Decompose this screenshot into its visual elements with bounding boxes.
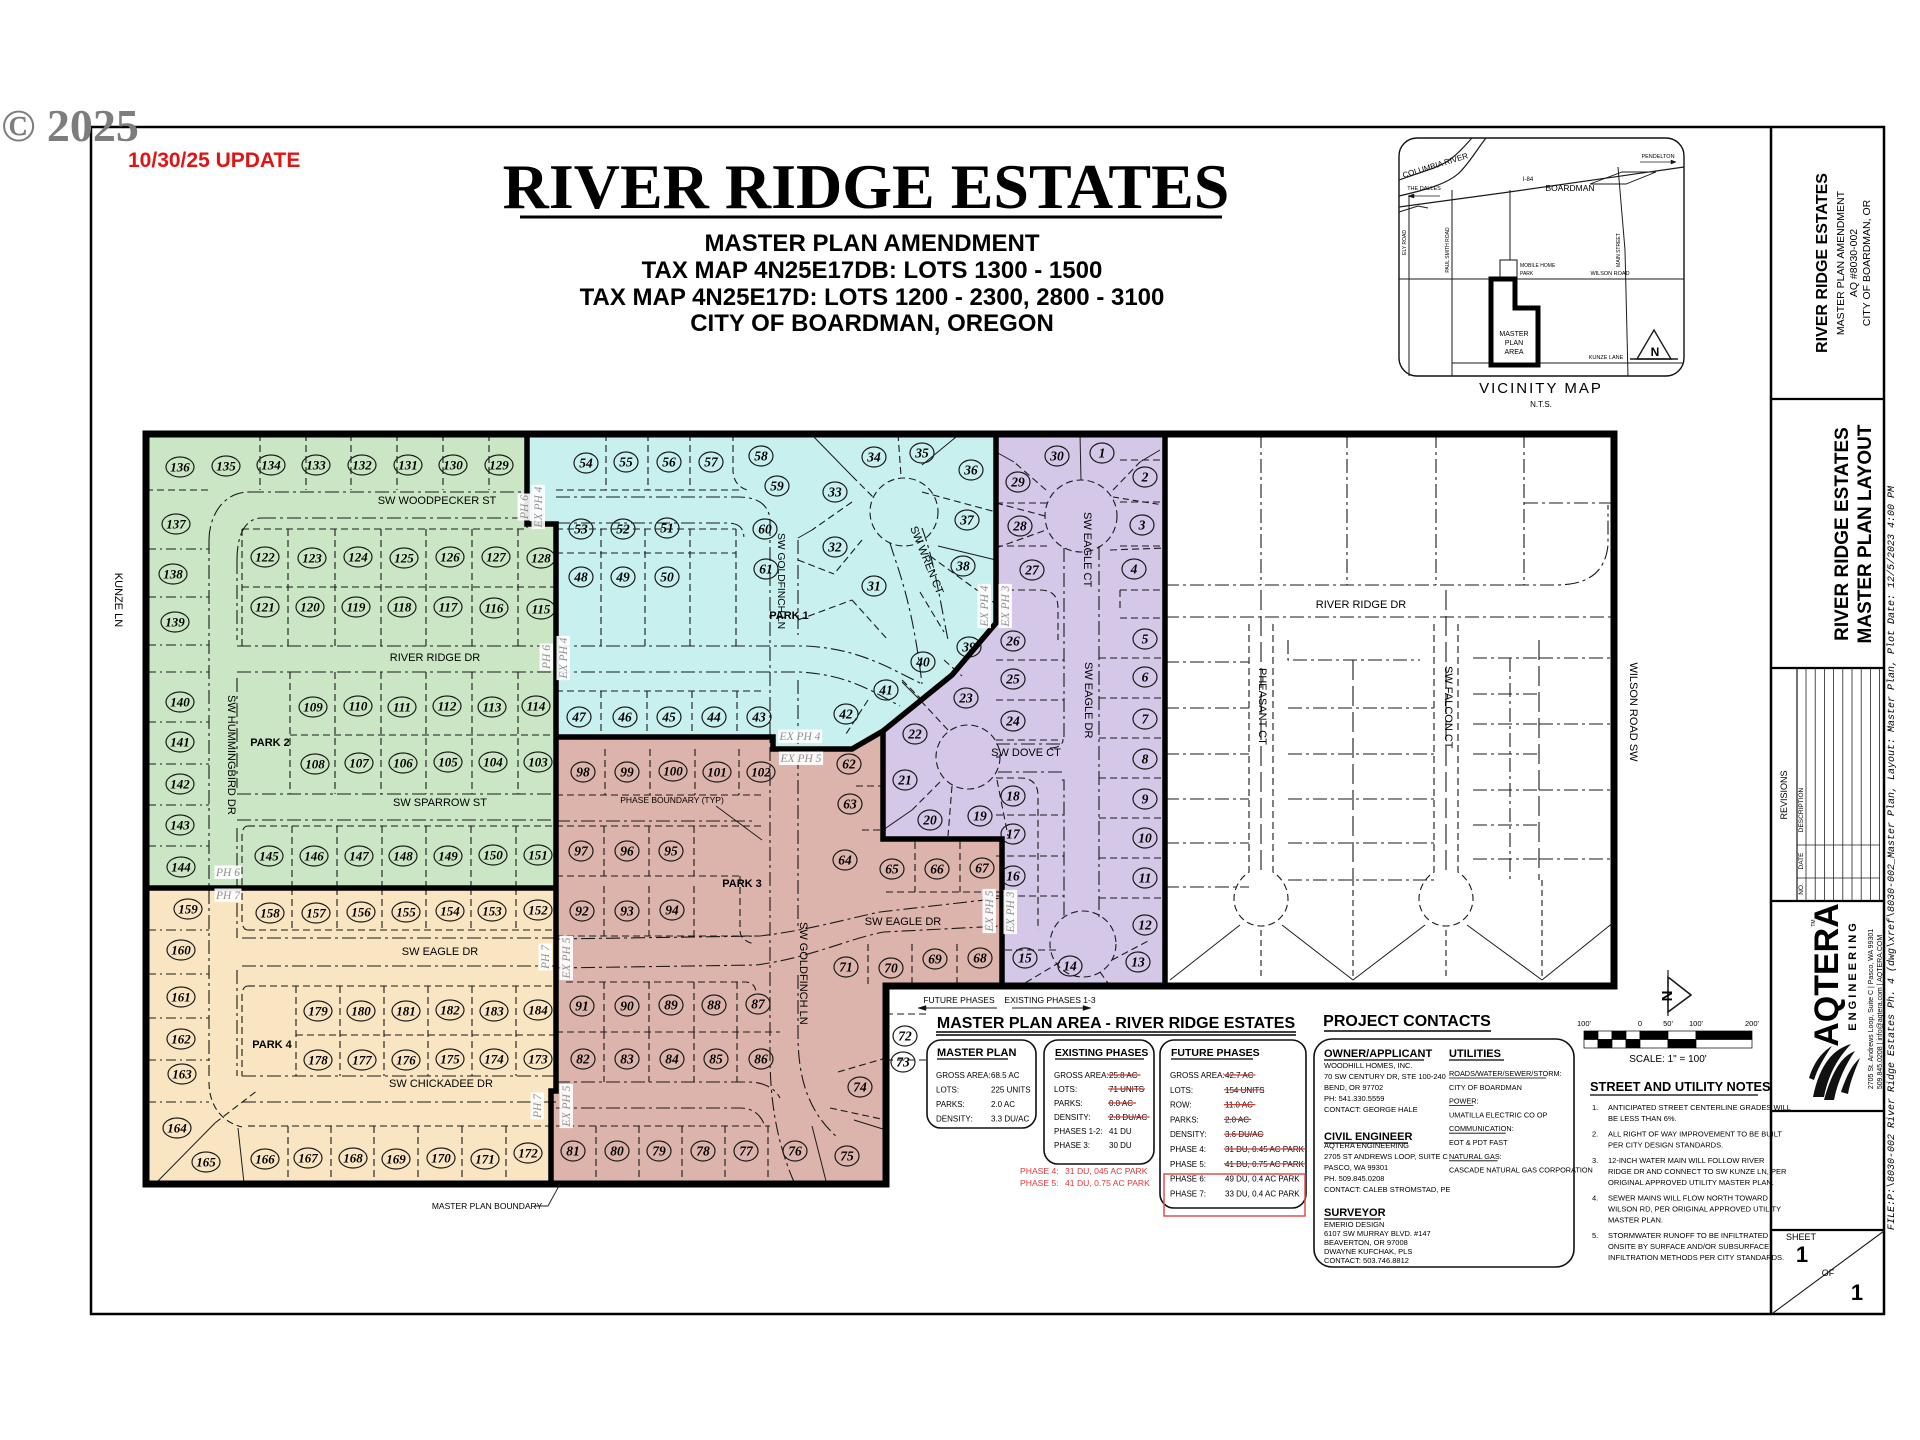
- svg-text:154: 154: [440, 904, 460, 919]
- svg-text:EX PH 4: EX PH 4: [533, 486, 545, 528]
- svg-text:101: 101: [707, 765, 727, 780]
- svg-text:SW GOLDFINCH LN: SW GOLDFINCH LN: [797, 922, 809, 1025]
- svg-text:90: 90: [620, 999, 634, 1014]
- svg-text:BOARDMAN: BOARDMAN: [1545, 183, 1594, 193]
- svg-text:17: 17: [1006, 827, 1021, 842]
- svg-text:51: 51: [660, 521, 674, 536]
- svg-text:ANTICIPATED STREET CENTERLINE: ANTICIPATED STREET CENTERLINE GRADES WIL…: [1608, 1103, 1791, 1112]
- svg-text:145: 145: [259, 849, 279, 864]
- svg-text:INFILTRATION METHODS PER CITY: INFILTRATION METHODS PER CITY STANDARDS.: [1608, 1253, 1784, 1262]
- svg-text:130: 130: [443, 458, 463, 473]
- svg-text:53: 53: [574, 522, 588, 537]
- svg-text:OWNER/APPLICANT: OWNER/APPLICANT: [1324, 1048, 1432, 1060]
- svg-text:91: 91: [575, 999, 589, 1014]
- svg-text:24: 24: [1005, 714, 1020, 729]
- svg-text:100': 100': [1577, 1019, 1592, 1028]
- svg-text:SW CHICKADEE DR: SW CHICKADEE DR: [389, 1078, 493, 1090]
- svg-text:122: 122: [255, 550, 275, 565]
- svg-text:PHASE 5:: PHASE 5:: [1020, 1178, 1059, 1188]
- svg-text:50': 50': [1663, 1019, 1673, 1028]
- svg-text:PH: 541.330.5559: PH: 541.330.5559: [1324, 1094, 1384, 1103]
- svg-text:33: 33: [827, 485, 842, 500]
- svg-text:81: 81: [566, 1144, 580, 1159]
- svg-text:SW DOVE CT: SW DOVE CT: [991, 747, 1061, 759]
- svg-text:107: 107: [349, 756, 369, 771]
- svg-text:EX PH 5: EX PH 5: [561, 1085, 573, 1127]
- svg-text:73: 73: [896, 1055, 910, 1070]
- svg-text:44: 44: [706, 710, 721, 725]
- svg-text:58: 58: [754, 449, 768, 464]
- svg-text:88: 88: [707, 998, 721, 1013]
- svg-text:123: 123: [302, 551, 322, 566]
- svg-text:106: 106: [393, 756, 413, 771]
- svg-text:109: 109: [303, 700, 323, 715]
- svg-text:WILSON ROAD: WILSON ROAD: [1590, 271, 1629, 277]
- svg-text:PLAN: PLAN: [1505, 340, 1523, 347]
- svg-text:95: 95: [664, 844, 678, 859]
- svg-text:PHASE BOUNDARY (TYP): PHASE BOUNDARY (TYP): [620, 795, 724, 805]
- svg-text:136: 136: [170, 460, 190, 475]
- svg-text:EX PH 4: EX PH 4: [558, 637, 570, 679]
- svg-text:PH 6: PH 6: [215, 867, 240, 879]
- svg-text:96: 96: [620, 844, 634, 859]
- svg-text:157: 157: [306, 906, 326, 921]
- svg-text:47: 47: [571, 710, 587, 725]
- svg-text:CITY OF BOARDMAN, OR: CITY OF BOARDMAN, OR: [1861, 199, 1873, 326]
- svg-text:E N G I N E E R I N G: E N G I N E E R I N G: [1847, 923, 1859, 1031]
- svg-text:61: 61: [759, 562, 773, 577]
- svg-text:121: 121: [255, 600, 275, 615]
- svg-text:67: 67: [975, 861, 990, 876]
- svg-text:RIVER RIDGE ESTATES: RIVER RIDGE ESTATES: [503, 151, 1230, 222]
- svg-text:63: 63: [843, 797, 857, 812]
- svg-text:114: 114: [527, 699, 546, 714]
- svg-text:PARKS:: PARKS:: [1054, 1099, 1083, 1108]
- svg-text:3.3 DU/AC: 3.3 DU/AC: [991, 1115, 1029, 1124]
- svg-text:80: 80: [610, 1144, 624, 1159]
- svg-text:MASTER PLAN.: MASTER PLAN.: [1608, 1216, 1663, 1225]
- svg-text:FUTURE PHASES: FUTURE PHASES: [923, 995, 995, 1005]
- svg-text:STORMWATER RUNOFF TO BE INFILT: STORMWATER RUNOFF TO BE INFILTRATED: [1608, 1231, 1769, 1240]
- svg-text:64: 64: [838, 853, 852, 868]
- svg-text:PH 6: PH 6: [519, 495, 531, 520]
- svg-text:PHASES 1-2:: PHASES 1-2:: [1054, 1127, 1102, 1136]
- svg-text:PROJECT CONTACTS: PROJECT CONTACTS: [1323, 1013, 1491, 1030]
- svg-text:125: 125: [394, 551, 414, 566]
- svg-text:173: 173: [528, 1052, 548, 1067]
- svg-text:SEWER MAINS WILL FLOW NORTH TO: SEWER MAINS WILL FLOW NORTH TOWARD: [1608, 1194, 1768, 1203]
- svg-text:CONTACT: CALEB STROMSTAD, PE: CONTACT: CALEB STROMSTAD, PE: [1324, 1185, 1450, 1194]
- svg-text:KUNZE LN: KUNZE LN: [112, 573, 124, 627]
- svg-text:46: 46: [617, 710, 632, 725]
- svg-text:N: N: [1651, 345, 1660, 359]
- svg-text:69: 69: [928, 952, 942, 967]
- svg-text:180: 180: [351, 1004, 371, 1019]
- svg-text:1.: 1.: [1592, 1103, 1598, 1112]
- svg-text:PARK 4: PARK 4: [252, 1039, 292, 1051]
- svg-text:60: 60: [758, 522, 772, 537]
- svg-text:PHASE 6:: PHASE 6:: [1170, 1175, 1206, 1184]
- svg-text:200': 200': [1745, 1019, 1760, 1028]
- svg-text:20: 20: [922, 813, 937, 828]
- svg-text:148: 148: [393, 849, 413, 864]
- svg-text:77: 77: [739, 1144, 754, 1159]
- svg-text:MASTER PLAN AMENDMENT: MASTER PLAN AMENDMENT: [704, 230, 1039, 257]
- svg-text:SW HUMMINGBIRD DR: SW HUMMINGBIRD DR: [225, 695, 237, 815]
- svg-text:124: 124: [348, 550, 368, 565]
- svg-text:PARK 1: PARK 1: [769, 610, 809, 622]
- svg-text:55: 55: [619, 455, 633, 470]
- svg-text:MASTER PLAN: MASTER PLAN: [937, 1047, 1017, 1059]
- svg-text:178: 178: [308, 1053, 328, 1068]
- svg-text:162: 162: [171, 1032, 191, 1047]
- svg-text:59: 59: [770, 479, 784, 494]
- svg-text:131: 131: [398, 458, 418, 473]
- svg-text:5: 5: [1142, 632, 1149, 647]
- svg-text:PHASE 4:: PHASE 4:: [1170, 1145, 1206, 1154]
- svg-text:POWER:: POWER:: [1449, 1097, 1479, 1106]
- svg-text:0: 0: [1638, 1019, 1642, 1028]
- svg-text:115: 115: [532, 602, 551, 617]
- svg-text:SHEET: SHEET: [1786, 1232, 1817, 1242]
- svg-text:PH 7: PH 7: [532, 1093, 544, 1119]
- svg-text:PENDELTON: PENDELTON: [1641, 154, 1674, 160]
- svg-text:CONTACT: GEORGE HALE: CONTACT: GEORGE HALE: [1324, 1105, 1418, 1114]
- svg-text:N: N: [1659, 991, 1676, 1002]
- svg-text:13: 13: [1131, 955, 1145, 970]
- svg-text:PARKS:: PARKS:: [1170, 1115, 1199, 1124]
- svg-text:27: 27: [1024, 563, 1040, 578]
- svg-text:BE LESS THAN 6%.: BE LESS THAN 6%.: [1608, 1114, 1677, 1123]
- svg-text:EX PH 5: EX PH 5: [984, 890, 996, 932]
- svg-text:70 SW CENTURY DR, STE 100-240: 70 SW CENTURY DR, STE 100-240: [1324, 1072, 1446, 1081]
- svg-text:1: 1: [1851, 1280, 1863, 1305]
- svg-text:99: 99: [620, 765, 634, 780]
- svg-text:DWAYNE KUFCHAK, PLS: DWAYNE KUFCHAK, PLS: [1324, 1247, 1412, 1256]
- svg-text:SW SPARROW ST: SW SPARROW ST: [393, 797, 487, 809]
- svg-text:LOTS:: LOTS:: [1054, 1085, 1077, 1094]
- svg-text:MOBILE HOME: MOBILE HOME: [1520, 263, 1556, 269]
- svg-text:NO.: NO.: [1798, 883, 1805, 895]
- svg-text:10: 10: [1138, 831, 1152, 846]
- svg-text:3.: 3.: [1592, 1156, 1598, 1165]
- svg-text:83: 83: [620, 1052, 634, 1067]
- svg-text:23: 23: [958, 691, 973, 706]
- svg-text:104: 104: [483, 755, 503, 770]
- svg-text:12: 12: [1138, 918, 1152, 933]
- svg-text:EX PH 3: EX PH 3: [1005, 891, 1017, 933]
- svg-text:GROSS AREA:: GROSS AREA:: [936, 1071, 991, 1080]
- svg-text:ALL RIGHT OF WAY IMPROVEMENT T: ALL RIGHT OF WAY IMPROVEMENT TO BE BUILT: [1608, 1130, 1782, 1139]
- svg-text:134: 134: [261, 458, 281, 473]
- svg-text:KUNZE LANE: KUNZE LANE: [1589, 355, 1624, 361]
- svg-text:87: 87: [751, 997, 766, 1012]
- svg-text:LOTS:: LOTS:: [1170, 1086, 1193, 1095]
- svg-text:75: 75: [840, 1149, 854, 1164]
- svg-text:129: 129: [489, 458, 509, 473]
- svg-text:170: 170: [431, 1151, 451, 1166]
- svg-text:54: 54: [579, 456, 593, 471]
- svg-text:72: 72: [898, 1029, 912, 1044]
- svg-text:45: 45: [661, 710, 676, 725]
- svg-text:RIDGE DR AND CONNECT TO SW KUN: RIDGE DR AND CONNECT TO SW KUNZE LN, PER: [1608, 1167, 1787, 1176]
- svg-text:GROSS AREA:: GROSS AREA:: [1170, 1071, 1225, 1080]
- svg-text:509.845.0208 | info@aqtera.c: 509.845.0208 | info@aqtera.com | AQTERA.…: [1877, 935, 1884, 1089]
- svg-text:CONTACT: 503.746.8812: CONTACT: 503.746.8812: [1324, 1256, 1409, 1265]
- svg-text:158: 158: [260, 906, 280, 921]
- svg-text:225 UNITS: 225 UNITS: [991, 1086, 1031, 1095]
- svg-text:68: 68: [973, 951, 987, 966]
- svg-text:30 DU: 30 DU: [1109, 1141, 1132, 1150]
- svg-text:DENSITY:: DENSITY:: [1054, 1113, 1090, 1122]
- svg-text:BEAVERTON, OR 97008: BEAVERTON, OR 97008: [1324, 1238, 1408, 1247]
- svg-text:MASTER PLAN AREA - RIVER RIDGE: MASTER PLAN AREA - RIVER RIDGE ESTATES: [937, 1015, 1296, 1032]
- svg-text:12-INCH WATER MAIN WILL FOLLOW: 12-INCH WATER MAIN WILL FOLLOW RIVER: [1608, 1156, 1765, 1165]
- svg-text:EX PH 4: EX PH 4: [979, 585, 991, 627]
- svg-text:RIVER RIDGE DR: RIVER RIDGE DR: [390, 652, 481, 664]
- svg-text:SURVEYOR: SURVEYOR: [1324, 1207, 1386, 1219]
- svg-text:21: 21: [897, 773, 912, 788]
- svg-text:WILSON ROAD SW: WILSON ROAD SW: [1627, 662, 1639, 762]
- svg-text:11: 11: [1139, 871, 1152, 886]
- svg-text:SW EAGLE DR: SW EAGLE DR: [865, 916, 941, 928]
- svg-text:EX PH 4: EX PH 4: [779, 731, 821, 743]
- svg-text:166: 166: [255, 1152, 275, 1167]
- svg-text:84: 84: [665, 1052, 679, 1067]
- svg-text:NATURAL GAS:: NATURAL GAS:: [1449, 1152, 1502, 1161]
- svg-text:70: 70: [884, 961, 898, 976]
- svg-text:98: 98: [576, 765, 590, 780]
- svg-text:102: 102: [751, 765, 771, 780]
- svg-text:93: 93: [620, 904, 634, 919]
- svg-text:5.: 5.: [1592, 1231, 1598, 1240]
- svg-text:PHASE 3:: PHASE 3:: [1054, 1141, 1090, 1150]
- svg-text:167: 167: [298, 1151, 318, 1166]
- svg-text:57: 57: [704, 455, 719, 470]
- svg-text:EX PH 3: EX PH 3: [1000, 585, 1012, 627]
- svg-text:37: 37: [959, 513, 975, 528]
- svg-text:110: 110: [349, 699, 368, 714]
- svg-text:PHEASANT CT: PHEASANT CT: [1256, 668, 1268, 745]
- svg-text:STREET AND UTILITY NOTES: STREET AND UTILITY NOTES: [1590, 1079, 1771, 1094]
- svg-text:76: 76: [788, 1144, 802, 1159]
- svg-text:FILE:P:\8030-002 River Ridge E: FILE:P:\8030-002 River Ridge Estates Ph.…: [1886, 485, 1898, 1230]
- svg-text:111: 111: [393, 700, 411, 715]
- svg-text:82: 82: [576, 1052, 590, 1067]
- svg-text:36: 36: [963, 463, 978, 478]
- svg-text:137: 137: [166, 517, 186, 532]
- svg-text:TM: TM: [1811, 919, 1817, 926]
- svg-text:138: 138: [163, 567, 183, 582]
- svg-text:126: 126: [440, 550, 460, 565]
- svg-text:41: 41: [878, 683, 893, 698]
- svg-text:8: 8: [1142, 752, 1149, 767]
- svg-text:1: 1: [1796, 1242, 1808, 1267]
- svg-text:150: 150: [483, 848, 503, 863]
- svg-text:PASCO, WA 99301: PASCO, WA 99301: [1324, 1163, 1388, 1172]
- svg-text:10/30/25 UPDATE: 10/30/25 UPDATE: [128, 149, 300, 172]
- svg-text:THE DALLES: THE DALLES: [1407, 186, 1441, 192]
- svg-text:143: 143: [170, 818, 190, 833]
- svg-text:116: 116: [485, 601, 504, 616]
- svg-text:PH 7: PH 7: [215, 890, 241, 902]
- svg-text:56: 56: [662, 455, 676, 470]
- svg-text:159: 159: [178, 902, 198, 917]
- svg-text:25: 25: [1005, 672, 1020, 687]
- svg-text:71: 71: [839, 960, 853, 975]
- svg-text:PHASE 7:: PHASE 7:: [1170, 1189, 1206, 1198]
- svg-text:28: 28: [1012, 519, 1027, 534]
- svg-text:2.0 AC: 2.0 AC: [991, 1100, 1015, 1109]
- svg-text:142: 142: [170, 777, 190, 792]
- svg-text:38: 38: [955, 559, 970, 574]
- svg-text:152: 152: [528, 903, 548, 918]
- svg-text:RIVER RIDGE ESTATES: RIVER RIDGE ESTATES: [1814, 173, 1831, 353]
- svg-text:94: 94: [665, 903, 679, 918]
- svg-text:2.: 2.: [1592, 1130, 1598, 1139]
- svg-text:SCALE: 1" = 100': SCALE: 1" = 100': [1629, 1054, 1707, 1065]
- svg-text:2705 ST ANDREWS LOOP, SUITE C: 2705 ST ANDREWS LOOP, SUITE C: [1324, 1152, 1449, 1161]
- svg-text:184: 184: [528, 1003, 548, 1018]
- svg-text:MASTER PLAN LAYOUT: MASTER PLAN LAYOUT: [1855, 424, 1876, 643]
- svg-text:MASTER PLAN BOUNDARY: MASTER PLAN BOUNDARY: [432, 1201, 543, 1211]
- svg-text:SW EAGLE DR: SW EAGLE DR: [1082, 662, 1094, 738]
- svg-text:1: 1: [1099, 446, 1106, 461]
- svg-text:41 DU, 0.75 AC PARK: 41 DU, 0.75 AC PARK: [1065, 1178, 1150, 1188]
- svg-text:PER CITY DESIGN STANDARDS.: PER CITY DESIGN STANDARDS.: [1608, 1141, 1723, 1150]
- svg-text:4: 4: [1130, 562, 1138, 577]
- svg-text:183: 183: [484, 1004, 504, 1019]
- svg-text:6: 6: [1142, 670, 1149, 685]
- svg-text:EOT & PDT FAST: EOT & PDT FAST: [1449, 1138, 1508, 1147]
- svg-text:52: 52: [616, 522, 630, 537]
- svg-text:WOODHILL HOMES, INC.: WOODHILL HOMES, INC.: [1324, 1061, 1412, 1070]
- svg-text:19: 19: [973, 809, 987, 824]
- svg-text:EXISTING PHASES 1-3: EXISTING PHASES 1-3: [1004, 995, 1095, 1005]
- svg-text:100: 100: [663, 764, 683, 779]
- svg-text:133: 133: [306, 458, 326, 473]
- svg-text:DENSITY:: DENSITY:: [1170, 1130, 1206, 1139]
- svg-text:49: 49: [615, 570, 630, 585]
- svg-text:160: 160: [171, 943, 191, 958]
- svg-text:14: 14: [1063, 959, 1077, 974]
- svg-text:117: 117: [439, 600, 458, 615]
- svg-text:9: 9: [1142, 792, 1149, 807]
- svg-text:15: 15: [1018, 951, 1032, 966]
- svg-text:TAX MAP 4N25E17DB: LOTS 1300 -: TAX MAP 4N25E17DB: LOTS 1300 - 1500: [642, 257, 1103, 284]
- svg-text:DESCRIPTION: DESCRIPTION: [1798, 787, 1805, 832]
- svg-text:92: 92: [575, 904, 589, 919]
- svg-text:139: 139: [165, 615, 185, 630]
- svg-text:108: 108: [305, 757, 325, 772]
- svg-text:4.: 4.: [1592, 1194, 1598, 1203]
- svg-text:BEND, OR 97702: BEND, OR 97702: [1324, 1083, 1383, 1092]
- svg-text:MASTER: MASTER: [1499, 331, 1528, 338]
- svg-text:155: 155: [396, 905, 416, 920]
- svg-text:30: 30: [1049, 449, 1064, 464]
- svg-text:41 DU: 41 DU: [1109, 1127, 1132, 1136]
- svg-text:ROW:: ROW:: [1170, 1101, 1192, 1110]
- svg-text:48: 48: [573, 570, 588, 585]
- svg-text:43: 43: [751, 710, 766, 725]
- svg-text:WILSON RD, PER ORIGINAL APPROV: WILSON RD, PER ORIGINAL APPROVED UTILITY: [1608, 1205, 1781, 1214]
- svg-text:6107 SW MURRAY BLVD. #147: 6107 SW MURRAY BLVD. #147: [1324, 1229, 1431, 1238]
- svg-text:65: 65: [885, 862, 899, 877]
- svg-text:PHASE 4:: PHASE 4:: [1020, 1166, 1059, 1176]
- svg-text:2: 2: [1141, 470, 1149, 485]
- svg-text:SW EAGLE CT: SW EAGLE CT: [1081, 512, 1093, 587]
- svg-text:42: 42: [838, 707, 853, 722]
- svg-text:62: 62: [842, 757, 856, 772]
- svg-text:68.5 AC: 68.5 AC: [991, 1071, 1020, 1080]
- svg-text:174: 174: [484, 1052, 504, 1067]
- svg-text:156: 156: [351, 905, 371, 920]
- svg-text:147: 147: [349, 849, 369, 864]
- svg-text:EX PH 5: EX PH 5: [561, 937, 573, 979]
- svg-text:GROSS AREA:: GROSS AREA:: [1054, 1071, 1109, 1080]
- svg-text:ELY ROAD: ELY ROAD: [1402, 230, 1408, 255]
- svg-text:I-84: I-84: [1523, 177, 1534, 183]
- svg-text:2705 St. Andrews Loop, Suite C: 2705 St. Andrews Loop, Suite C | Pasco, …: [1868, 929, 1875, 1089]
- svg-text:89: 89: [664, 998, 678, 1013]
- svg-text:112: 112: [438, 699, 457, 714]
- svg-text:113: 113: [483, 700, 502, 715]
- svg-text:PHASE 5:: PHASE 5:: [1170, 1160, 1206, 1169]
- svg-text:SW EAGLE DR: SW EAGLE DR: [402, 946, 478, 958]
- svg-text:119: 119: [347, 600, 366, 615]
- svg-text:UTILITIES: UTILITIES: [1449, 1048, 1501, 1060]
- svg-text:EXISTING PHASES: EXISTING PHASES: [1055, 1048, 1148, 1059]
- svg-text:50: 50: [660, 570, 674, 585]
- svg-text:179: 179: [308, 1004, 328, 1019]
- svg-text:16: 16: [1006, 869, 1020, 884]
- svg-text:PARKS:: PARKS:: [936, 1100, 965, 1109]
- svg-text:141: 141: [170, 735, 190, 750]
- svg-text:153: 153: [482, 904, 502, 919]
- svg-text:34: 34: [866, 450, 881, 465]
- svg-text:COMMUNICATION:: COMMUNICATION:: [1449, 1124, 1514, 1133]
- svg-text:SW WOODPECKER ST: SW WOODPECKER ST: [378, 495, 497, 507]
- svg-text:31: 31: [866, 579, 881, 594]
- svg-text:PAUL SMITH ROAD: PAUL SMITH ROAD: [1445, 227, 1451, 273]
- svg-text:32: 32: [827, 540, 842, 555]
- svg-text:172: 172: [518, 1146, 538, 1161]
- svg-text:171: 171: [475, 1152, 495, 1167]
- svg-text:161: 161: [171, 990, 191, 1005]
- svg-text:66: 66: [930, 862, 944, 877]
- svg-text:CASCADE NATURAL GAS CORPORATIO: CASCADE NATURAL GAS CORPORATION: [1449, 1166, 1593, 1175]
- svg-text:79: 79: [652, 1144, 666, 1159]
- svg-text:PH 7: PH 7: [540, 944, 552, 970]
- svg-text:105: 105: [438, 755, 458, 770]
- svg-text:182: 182: [440, 1003, 460, 1018]
- svg-text:LOTS:: LOTS:: [936, 1086, 959, 1095]
- svg-text:118: 118: [393, 600, 412, 615]
- svg-text:26: 26: [1005, 634, 1020, 649]
- svg-text:164: 164: [167, 1121, 187, 1136]
- svg-text:151: 151: [528, 848, 548, 863]
- svg-text:103: 103: [528, 755, 548, 770]
- svg-text:85: 85: [709, 1052, 723, 1067]
- svg-text:18: 18: [1006, 789, 1020, 804]
- svg-text:PARK 2: PARK 2: [250, 737, 290, 749]
- svg-text:31 DU, 045 AC PARK: 31 DU, 045 AC PARK: [1065, 1166, 1148, 1176]
- svg-text:MASTER PLAN AMENDMENT: MASTER PLAN AMENDMENT: [1835, 190, 1847, 335]
- svg-text:PARK 3: PARK 3: [722, 878, 762, 890]
- svg-text:127: 127: [486, 550, 506, 565]
- svg-text:TAX MAP 4N25E17D: LOTS 1200 -: TAX MAP 4N25E17D: LOTS 1200 - 2300, 2800…: [580, 284, 1165, 311]
- svg-text:40: 40: [915, 655, 930, 670]
